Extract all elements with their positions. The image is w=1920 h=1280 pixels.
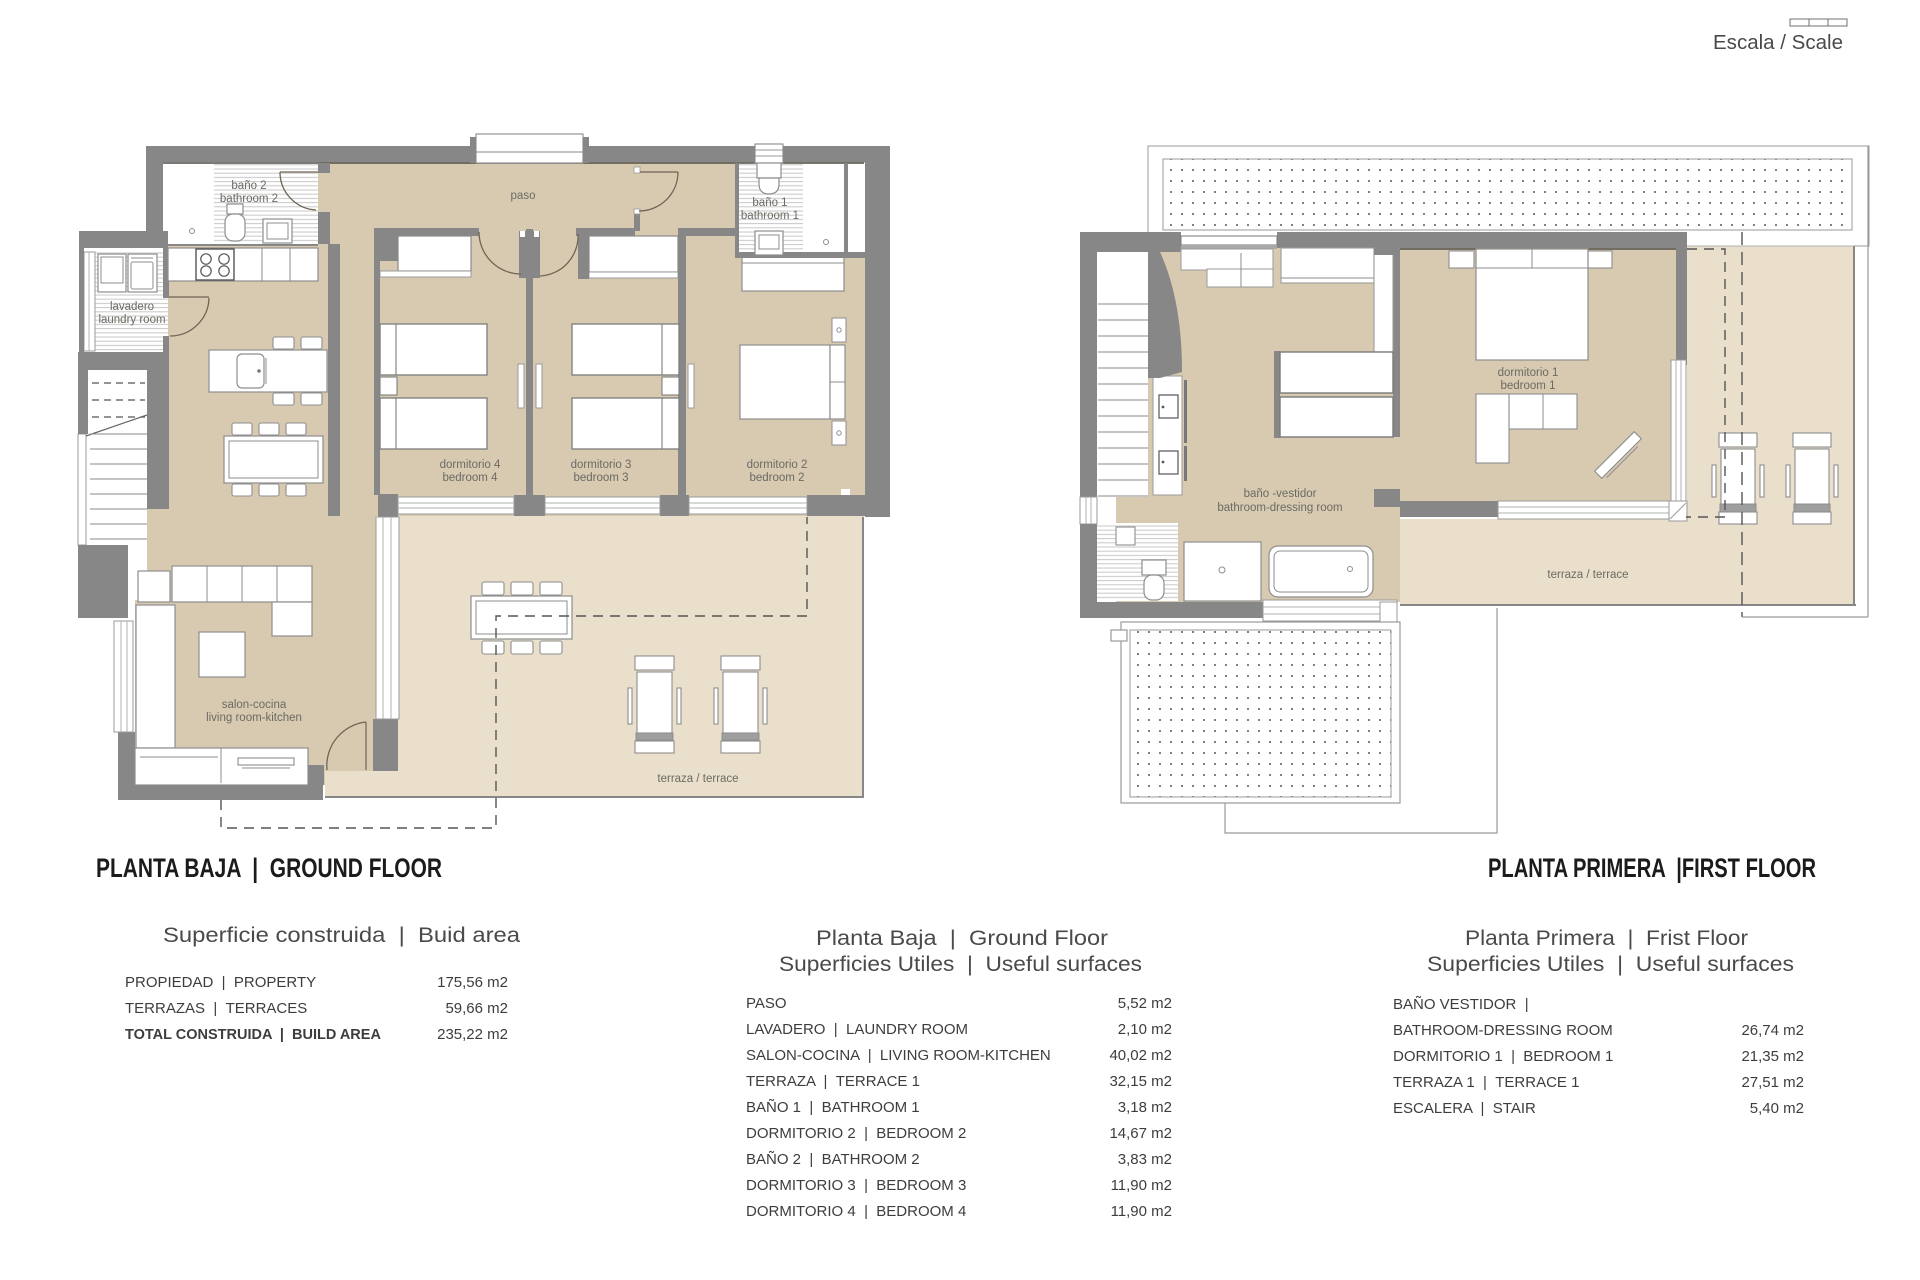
svg-text:DORMITORIO 3 | BEDROOM 3: DORMITORIO 3 | BEDROOM 3	[746, 1177, 966, 1194]
svg-text:3,83 m2: 3,83 m2	[1118, 1151, 1172, 1168]
svg-text:DORMITORIO 2 | BEDROOM 2: DORMITORIO 2 | BEDROOM 2	[746, 1125, 966, 1142]
svg-text:dormitorio 4: dormitorio 4	[440, 459, 501, 471]
svg-text:bedroom 2: bedroom 2	[750, 472, 805, 484]
svg-text:Superficie construida | Buid: Superficie construida | Buid area	[163, 924, 520, 947]
svg-text:BAÑO 1 | BATHROOM 1: BAÑO 1 | BATHROOM 1	[746, 1099, 920, 1116]
svg-text:bathroom 1: bathroom 1	[741, 210, 799, 222]
svg-text:PASO: PASO	[746, 995, 787, 1012]
svg-text:bedroom 4: bedroom 4	[443, 472, 499, 484]
svg-text:SALON-COCINA | LIVING ROOM-K: SALON-COCINA | LIVING ROOM-KITCHEN	[746, 1047, 1051, 1064]
svg-text:salon-cocina: salon-cocina	[222, 699, 287, 711]
svg-text:ESCALERA | STAIR: ESCALERA | STAIR	[1393, 1100, 1536, 1117]
svg-text:bathroom-dressing room: bathroom-dressing room	[1217, 502, 1342, 514]
svg-text:laundry room: laundry room	[98, 314, 165, 326]
svg-text:dormitorio 2: dormitorio 2	[747, 459, 808, 471]
svg-text:11,90 m2: 11,90 m2	[1111, 1177, 1172, 1194]
svg-text:Planta Primera | Frist Floor: Planta Primera | Frist Floor	[1465, 927, 1748, 950]
svg-text:TERRAZA 1 | TERRACE 1: TERRAZA 1 | TERRACE 1	[1393, 1074, 1579, 1091]
svg-text:DORMITORIO 1 | BEDROOM 1: DORMITORIO 1 | BEDROOM 1	[1393, 1048, 1613, 1065]
svg-text:BAÑO VESTIDOR |: BAÑO VESTIDOR |	[1393, 996, 1529, 1013]
svg-text:LAVADERO | LAUNDRY ROOM: LAVADERO | LAUNDRY ROOM	[746, 1021, 968, 1038]
svg-text:paso: paso	[511, 190, 536, 202]
svg-text:baño 1: baño 1	[752, 197, 787, 209]
svg-text:TOTAL CONSTRUIDA | BUILD ARE: TOTAL CONSTRUIDA | BUILD AREA	[125, 1027, 381, 1043]
svg-text:BAÑO 2 | BATHROOM 2: BAÑO 2 | BATHROOM 2	[746, 1151, 920, 1168]
svg-text:baño -vestidor: baño -vestidor	[1244, 488, 1317, 500]
svg-text:26,74 m2: 26,74 m2	[1741, 1022, 1804, 1039]
svg-text:PROPIEDAD | PROPERTY: PROPIEDAD | PROPERTY	[125, 974, 316, 991]
svg-text:59,66 m2: 59,66 m2	[445, 1000, 508, 1017]
svg-text:2,10 m2: 2,10 m2	[1118, 1021, 1172, 1038]
svg-text:bedroom 3: bedroom 3	[574, 472, 629, 484]
svg-text:living room-kitchen: living room-kitchen	[206, 712, 302, 724]
svg-text:3,18 m2: 3,18 m2	[1118, 1099, 1172, 1116]
svg-text:bathroom 2: bathroom 2	[220, 193, 278, 205]
svg-text:27,51 m2: 27,51 m2	[1741, 1074, 1804, 1091]
svg-text:TERRAZA | TERRACE 1: TERRAZA | TERRACE 1	[746, 1073, 920, 1090]
svg-text:baño 2: baño 2	[231, 180, 266, 192]
svg-text:235,22 m2: 235,22 m2	[437, 1026, 508, 1043]
svg-text:Superficies Utiles | Useful: Superficies Utiles | Useful surfaces	[779, 953, 1142, 976]
svg-text:PLANTA PRIMERA |FIRST FLOOR: PLANTA PRIMERA |FIRST FLOOR	[1488, 853, 1816, 883]
svg-text:32,15 m2: 32,15 m2	[1109, 1073, 1172, 1090]
svg-text:terraza / terrace: terraza / terrace	[657, 773, 738, 785]
svg-text:Escala / Scale: Escala / Scale	[1713, 32, 1843, 54]
svg-text:lavadero: lavadero	[110, 301, 154, 313]
svg-text:TERRAZAS | TERRACES: TERRAZAS | TERRACES	[125, 1000, 307, 1017]
svg-text:175,56 m2: 175,56 m2	[437, 974, 508, 991]
svg-text:11,90 m2: 11,90 m2	[1111, 1203, 1172, 1220]
svg-text:5,40 m2: 5,40 m2	[1750, 1100, 1804, 1117]
svg-text:14,67 m2: 14,67 m2	[1109, 1125, 1172, 1142]
svg-text:21,35 m2: 21,35 m2	[1741, 1048, 1804, 1065]
svg-text:bedroom 1: bedroom 1	[1501, 380, 1556, 392]
svg-text:Planta Baja | Ground Floor: Planta Baja | Ground Floor	[816, 927, 1108, 950]
svg-text:DORMITORIO 4 | BEDROOM 4: DORMITORIO 4 | BEDROOM 4	[746, 1203, 966, 1220]
svg-text:40,02 m2: 40,02 m2	[1109, 1047, 1172, 1064]
svg-text:dormitorio 3: dormitorio 3	[571, 459, 632, 471]
svg-text:PLANTA BAJA | GROUND FLOOR: PLANTA BAJA | GROUND FLOOR	[96, 853, 442, 883]
svg-text:BATHROOM-DRESSING ROOM: BATHROOM-DRESSING ROOM	[1393, 1022, 1613, 1039]
svg-text:terraza / terrace: terraza / terrace	[1547, 569, 1628, 581]
svg-text:dormitorio 1: dormitorio 1	[1498, 367, 1559, 379]
svg-text:5,52 m2: 5,52 m2	[1118, 995, 1172, 1012]
svg-text:Superficies Utiles | Useful: Superficies Utiles | Useful surfaces	[1427, 953, 1794, 976]
